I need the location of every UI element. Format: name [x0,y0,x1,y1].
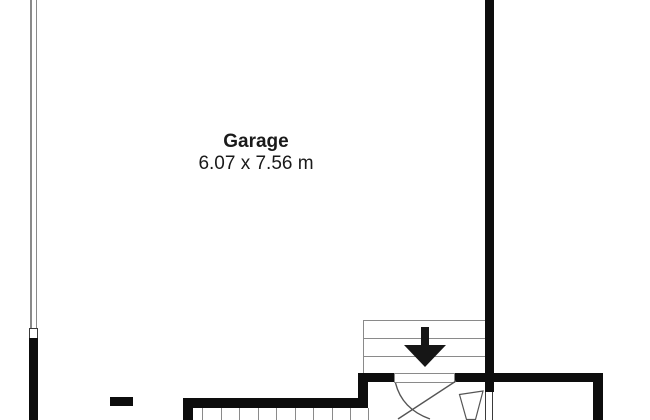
stairs-down-arrow-icon [404,327,446,367]
floor-plan: Garage 6.07 x 7.56 m [0,0,650,420]
door-leaf [460,391,484,420]
door-swing [396,381,457,419]
